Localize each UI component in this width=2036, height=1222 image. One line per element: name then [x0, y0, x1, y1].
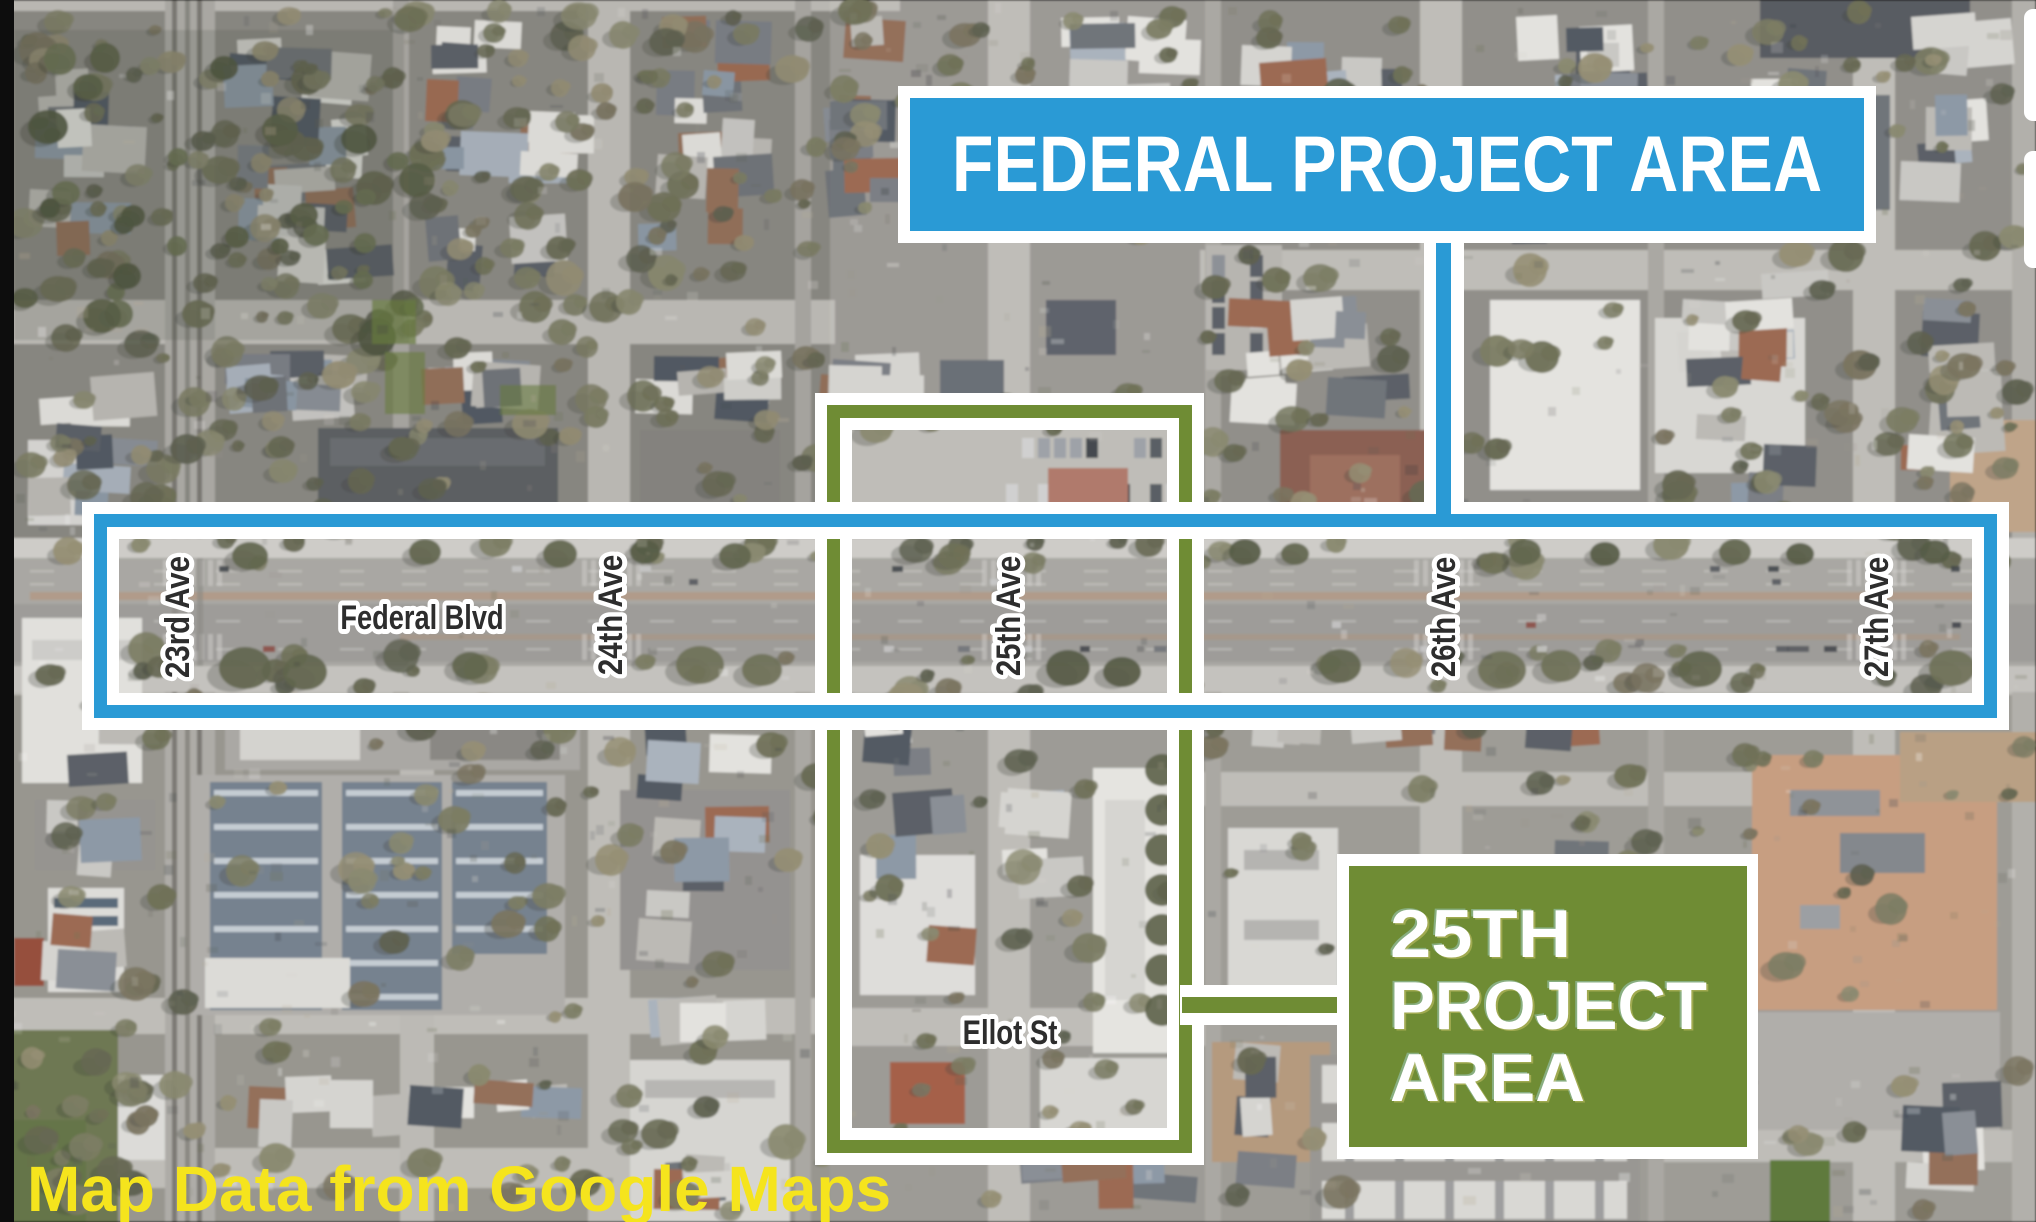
svg-text:23rd Ave: 23rd Ave [158, 556, 197, 678]
svg-text:24th Ave: 24th Ave [591, 555, 630, 675]
svg-text:25th Ave: 25th Ave [989, 556, 1028, 676]
svg-text:FEDERAL PROJECT AREA: FEDERAL PROJECT AREA [952, 119, 1822, 208]
svg-text:26th Ave: 26th Ave [1424, 557, 1463, 677]
svg-text:Ellot St: Ellot St [963, 1013, 1058, 1051]
svg-text:PROJECT: PROJECT [1390, 969, 1707, 1044]
svg-text:Map Data from Google Maps: Map Data from Google Maps [27, 1153, 891, 1222]
svg-text:25TH: 25TH [1390, 897, 1571, 973]
svg-text:27th Ave: 27th Ave [1857, 557, 1896, 677]
svg-text:AREA: AREA [1390, 1040, 1585, 1116]
svg-text:Federal Blvd: Federal Blvd [340, 598, 503, 637]
